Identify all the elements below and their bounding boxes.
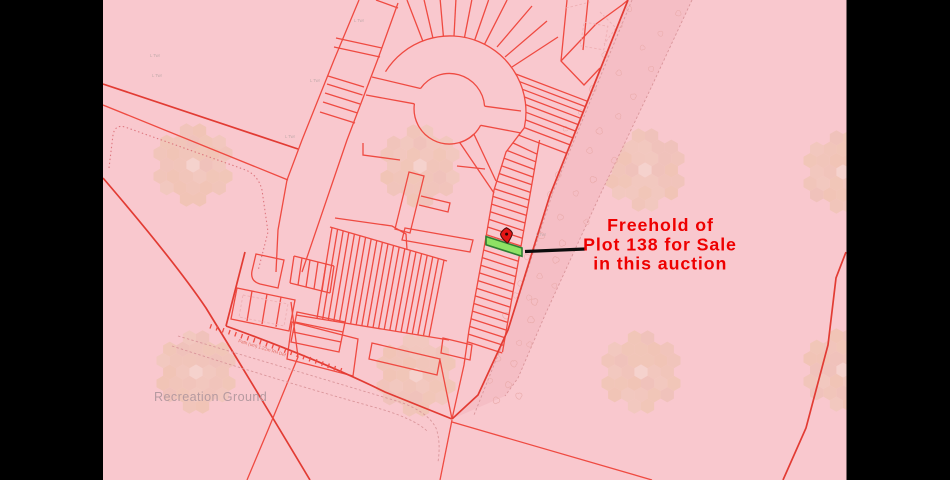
svg-text:L Twr: L Twr [310, 78, 321, 83]
svg-text:L Twr: L Twr [285, 134, 296, 139]
svg-text:Plot 138 for Sale: Plot 138 for Sale [583, 235, 737, 255]
svg-text:Recreation Ground: Recreation Ground [154, 390, 267, 404]
svg-text:L Twr: L Twr [536, 232, 547, 237]
svg-text:L Twr: L Twr [150, 53, 161, 58]
svg-text:L Twr: L Twr [152, 73, 163, 78]
svg-text:Freehold of: Freehold of [607, 215, 714, 235]
svg-text:in this auction: in this auction [593, 253, 727, 273]
svg-text:L Twr: L Twr [354, 18, 365, 23]
